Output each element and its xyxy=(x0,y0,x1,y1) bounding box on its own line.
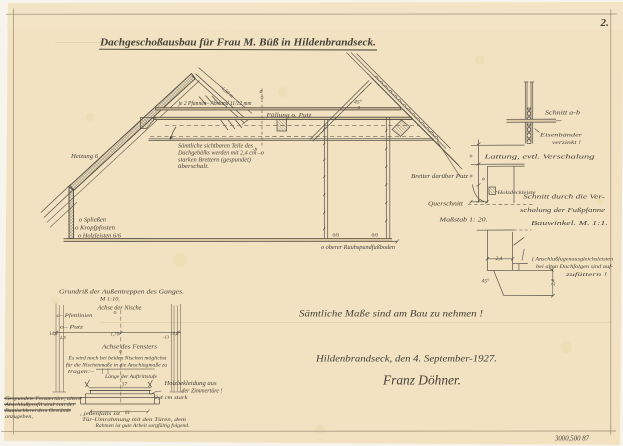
svg-text:a: a xyxy=(260,88,263,95)
svg-text:45°: 45° xyxy=(482,278,490,285)
svg-text:M 1:10.: M 1:10. xyxy=(99,297,120,303)
svg-text:zufüttern !: zufüttern ! xyxy=(564,271,607,278)
svg-text:Rahmen ist gute Arbeit sorgfäl: Rahmen ist gute Arbeit sorgfältig folgen… xyxy=(94,422,189,429)
svg-text:überschalt.: überschalt. xyxy=(178,164,209,170)
svg-text:-13: -13 xyxy=(163,335,170,340)
svg-text:Franz Döhner.: Franz Döhner. xyxy=(382,374,461,389)
svg-text:Es wird noch bei beiden Nische: Es wird noch bei beiden Nischen möglichs… xyxy=(67,356,166,362)
svg-text:2,4: 2,4 xyxy=(552,279,557,286)
svg-text:Maßstab 1: 20.: Maßstab 1: 20. xyxy=(438,217,488,224)
svg-text:Dachgeschoßausbau für Frau M.: Dachgeschoßausbau für Frau M. Büß in Hil… xyxy=(99,38,376,49)
svg-text:Sämtliche Maße sind am Bau zu: Sämtliche Maße sind am Bau zu nehmen ! xyxy=(299,309,483,319)
svg-text:schalung der Fußpfanne: schalung der Fußpfanne xyxy=(520,207,605,214)
svg-text:Achse des Fensters: Achse des Fensters xyxy=(101,345,158,351)
svg-text:Schnitt a-b: Schnitt a-b xyxy=(545,110,580,117)
svg-text:2,4: 2,4 xyxy=(496,256,503,262)
svg-text:o oberer Rauhspundfußboden: o oberer Rauhspundfußboden xyxy=(321,244,395,251)
svg-text:Achse der Nische: Achse der Nische xyxy=(96,306,142,312)
svg-text:o– Putz: o– Putz xyxy=(60,325,84,331)
svg-text:3000,500 87: 3000,500 87 xyxy=(554,436,590,443)
svg-text:für die Nischenmaße in die Ans: für die Nischenmaße in die Anschlagmaße … xyxy=(66,362,167,369)
svg-text:57: 57 xyxy=(122,382,128,387)
svg-text:14,5: 14,5 xyxy=(170,332,179,337)
svg-text:Holzbekleidung aus: Holzbekleidung aus xyxy=(163,381,217,387)
svg-text:( Anschlußfugenausgleichsleist: ( Anschlußfugenausgleichsleisten xyxy=(532,256,613,263)
svg-text:Querschnitt: Querschnitt xyxy=(428,201,463,208)
svg-text:o– Pfettlinien: o– Pfettlinien xyxy=(57,312,93,319)
svg-text:6/6: 6/6 xyxy=(333,234,340,239)
svg-text:Lattung, evtl. Verschalung: Lattung, evtl. Verschalung xyxy=(483,154,596,161)
svg-text:61: 61 xyxy=(125,411,130,416)
svg-text:o Kropfpfosten: o Kropfpfosten xyxy=(75,225,115,232)
svg-text:14,5: 14,5 xyxy=(49,332,58,337)
svg-text:Länge der Auftrittstufe: Länge der Auftrittstufe xyxy=(104,373,158,380)
svg-text:1,70: 1,70 xyxy=(111,332,120,337)
svg-text:6/6: 6/6 xyxy=(372,234,379,239)
svg-text:bei alten Dachfolgen sind auf-: bei alten Dachfolgen sind auf- xyxy=(536,263,613,270)
svg-text:Tür-Umrahmung mit den Türen, d: Tür-Umrahmung mit den Türen, dem xyxy=(82,417,186,423)
svg-text:Bretter darüber Putz: Bretter darüber Putz xyxy=(411,174,469,180)
svg-text:starken Brettern (gespundet): starken Brettern (gespundet) xyxy=(178,157,251,164)
svg-text:Eisenbänder: Eisenbänder xyxy=(539,133,584,139)
svg-text:, jedenfalls ist: , jedenfalls ist xyxy=(80,410,121,417)
svg-text:Heizung 6: Heizung 6 xyxy=(70,154,98,160)
svg-text:Bauwinkel. M. 1:1.: Bauwinkel. M. 1:1. xyxy=(531,220,609,227)
svg-text:Füllung o. Putz: Füllung o. Putz xyxy=(265,113,312,119)
svg-text:Sämtliche sichtbaren Teile des: Sämtliche sichtbaren Teile des xyxy=(178,144,254,150)
svg-text:o Spließen: o Spließen xyxy=(79,217,106,224)
svg-text:2,4 cm stark: 2,4 cm stark xyxy=(155,395,189,401)
svg-text:Dachgebälks werden mit 2,4 cm: Dachgebälks werden mit 2,4 cm –o xyxy=(177,150,264,157)
svg-text:Schnitt durch die Ver-: Schnitt durch die Ver- xyxy=(523,194,605,201)
svg-text:der Zimmertüre !: der Zimmertüre ! xyxy=(182,388,223,394)
svg-text:anzugeben,: anzugeben, xyxy=(5,414,34,420)
svg-text:2.: 2. xyxy=(600,17,609,29)
svg-text:tragen:–: tragen:– xyxy=(68,369,94,375)
svg-text:Hildenbrandseck, den 4. Septem: Hildenbrandseck, den 4. September-1927. xyxy=(315,354,497,364)
svg-text:verzinkt !: verzinkt ! xyxy=(552,140,581,146)
svg-text:45°: 45° xyxy=(354,99,363,106)
svg-text:je 2 Pfannen– Abstand 11/12: je 2 Pfannen– Abstand 11/12 mm xyxy=(178,100,252,107)
svg-text:Grundriß der Außentreppen des: Grundriß der Außentreppen des Ganges. xyxy=(59,289,184,296)
